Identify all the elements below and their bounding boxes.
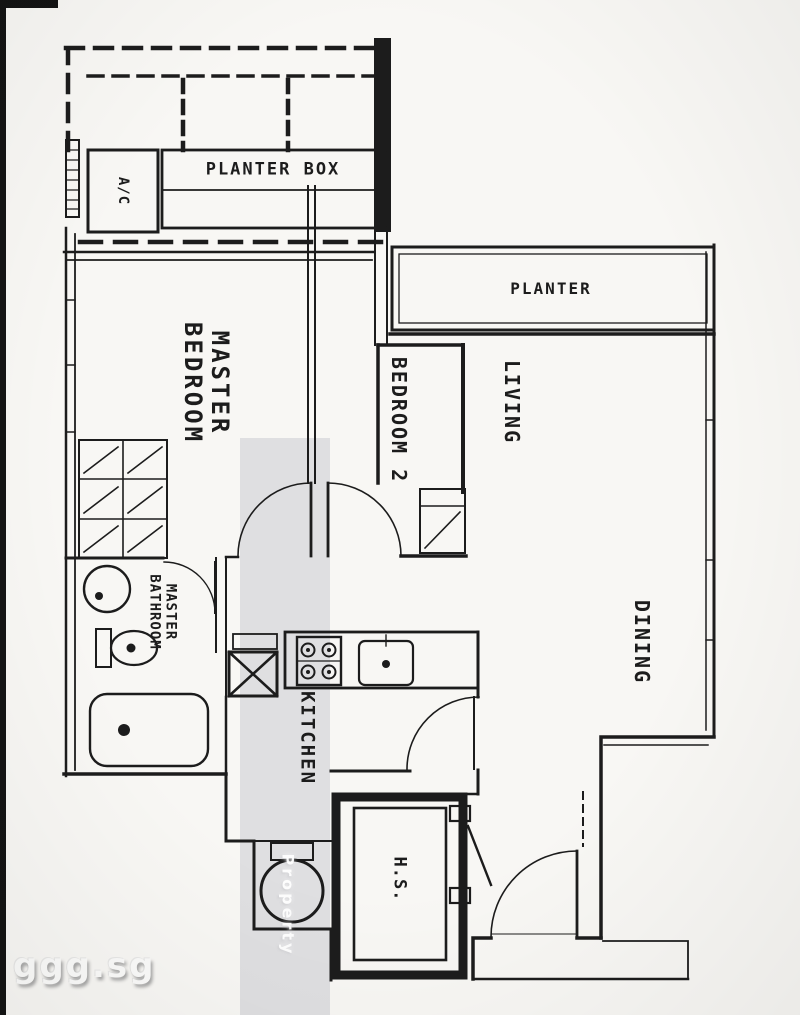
door-kitchen [407,697,479,769]
household-shelter-walls [336,797,463,975]
roof-ledge-dashed-outline [66,48,388,150]
bathroom-toilet [96,629,157,667]
door-master-bedroom [238,483,311,556]
door-household-shelter [450,806,491,903]
door-bedroom-2 [328,483,401,556]
door-master-bathroom [164,562,215,613]
scan-edge-top [0,0,58,8]
floorplan-scan: MASTER BEDROOM BEDROOM 2 LIVING DINING M… [0,0,800,1015]
scan-edge-left [0,0,6,1015]
door-main-entrance [491,851,577,937]
bathtub [90,694,208,766]
bathroom-sink [84,566,130,612]
bedroom2-wardrobe [420,489,465,553]
kitchen-sink [359,635,413,685]
kitchen-stove [297,637,341,685]
exterior-walls [64,228,714,980]
interior-walls [66,186,583,846]
ac-ledge [66,140,158,232]
planter-box-outline [80,150,388,242]
master-wardrobe [79,440,167,558]
wc-toilet [261,843,323,922]
floor-trap-box [229,634,277,696]
planter-outline [390,247,714,334]
floorplan-drawing [0,0,800,1015]
